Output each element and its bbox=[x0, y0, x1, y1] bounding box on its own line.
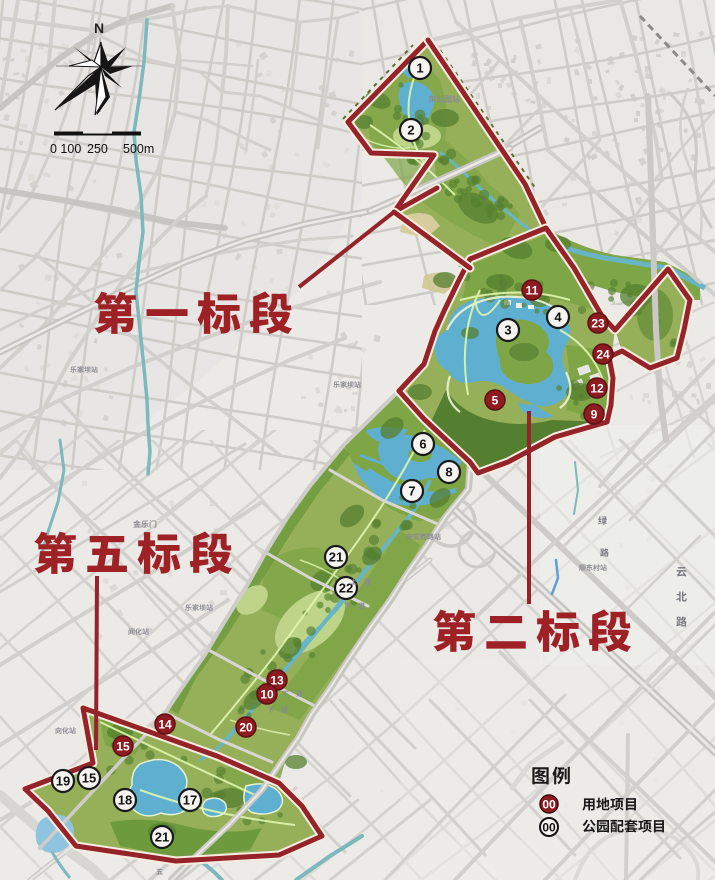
svg-text:3: 3 bbox=[504, 323, 511, 338]
svg-text:9: 9 bbox=[591, 408, 598, 422]
svg-text:14: 14 bbox=[158, 718, 172, 732]
svg-text:250: 250 bbox=[87, 142, 108, 156]
svg-text:12: 12 bbox=[590, 382, 604, 396]
svg-text:11: 11 bbox=[526, 284, 539, 298]
svg-text:15: 15 bbox=[116, 740, 130, 754]
svg-text:00: 00 bbox=[542, 798, 556, 812]
svg-text:00: 00 bbox=[542, 821, 556, 835]
svg-text:18: 18 bbox=[118, 793, 132, 808]
svg-text:21: 21 bbox=[329, 550, 343, 565]
svg-text:5: 5 bbox=[492, 394, 499, 408]
svg-text:22: 22 bbox=[339, 581, 353, 596]
svg-text:1: 1 bbox=[416, 61, 423, 76]
svg-text:N: N bbox=[94, 20, 104, 36]
svg-text:24: 24 bbox=[596, 348, 610, 362]
svg-text:15: 15 bbox=[82, 771, 96, 786]
svg-text:500m: 500m bbox=[123, 142, 154, 156]
svg-text:20: 20 bbox=[239, 721, 253, 735]
svg-text:2: 2 bbox=[407, 123, 414, 138]
svg-text:8: 8 bbox=[445, 465, 452, 480]
svg-text:6: 6 bbox=[419, 437, 426, 452]
svg-text:10: 10 bbox=[260, 688, 274, 702]
svg-text:0 100: 0 100 bbox=[50, 142, 81, 156]
svg-text:7: 7 bbox=[408, 484, 415, 499]
svg-text:17: 17 bbox=[183, 793, 197, 808]
svg-text:19: 19 bbox=[56, 774, 70, 789]
svg-text:4: 4 bbox=[554, 310, 562, 325]
svg-text:23: 23 bbox=[591, 317, 605, 331]
svg-text:21: 21 bbox=[155, 830, 169, 845]
